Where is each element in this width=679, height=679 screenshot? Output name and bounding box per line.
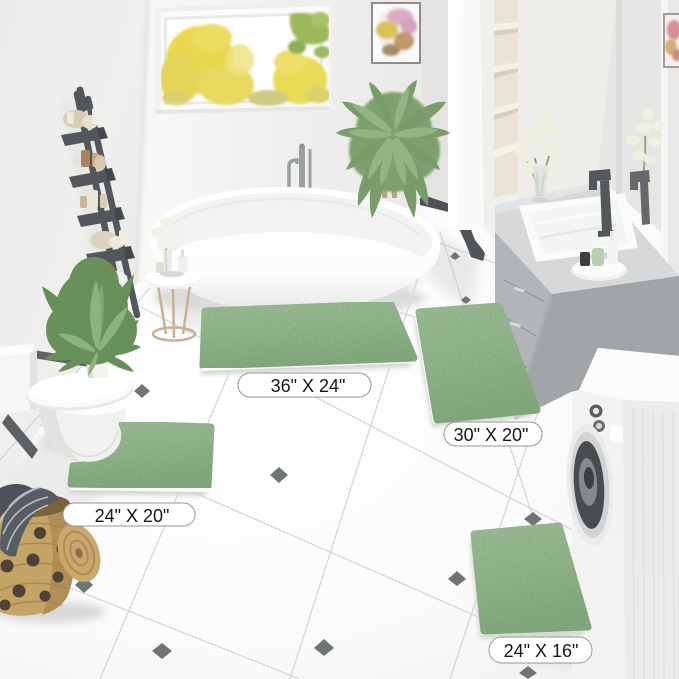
svg-text:24" X 20": 24" X 20" bbox=[95, 506, 170, 526]
svg-text:24" X 16": 24" X 16" bbox=[504, 641, 579, 661]
svg-text:36" X 24": 36" X 24" bbox=[271, 376, 346, 396]
svg-text:30" X 20": 30" X 20" bbox=[454, 425, 529, 445]
